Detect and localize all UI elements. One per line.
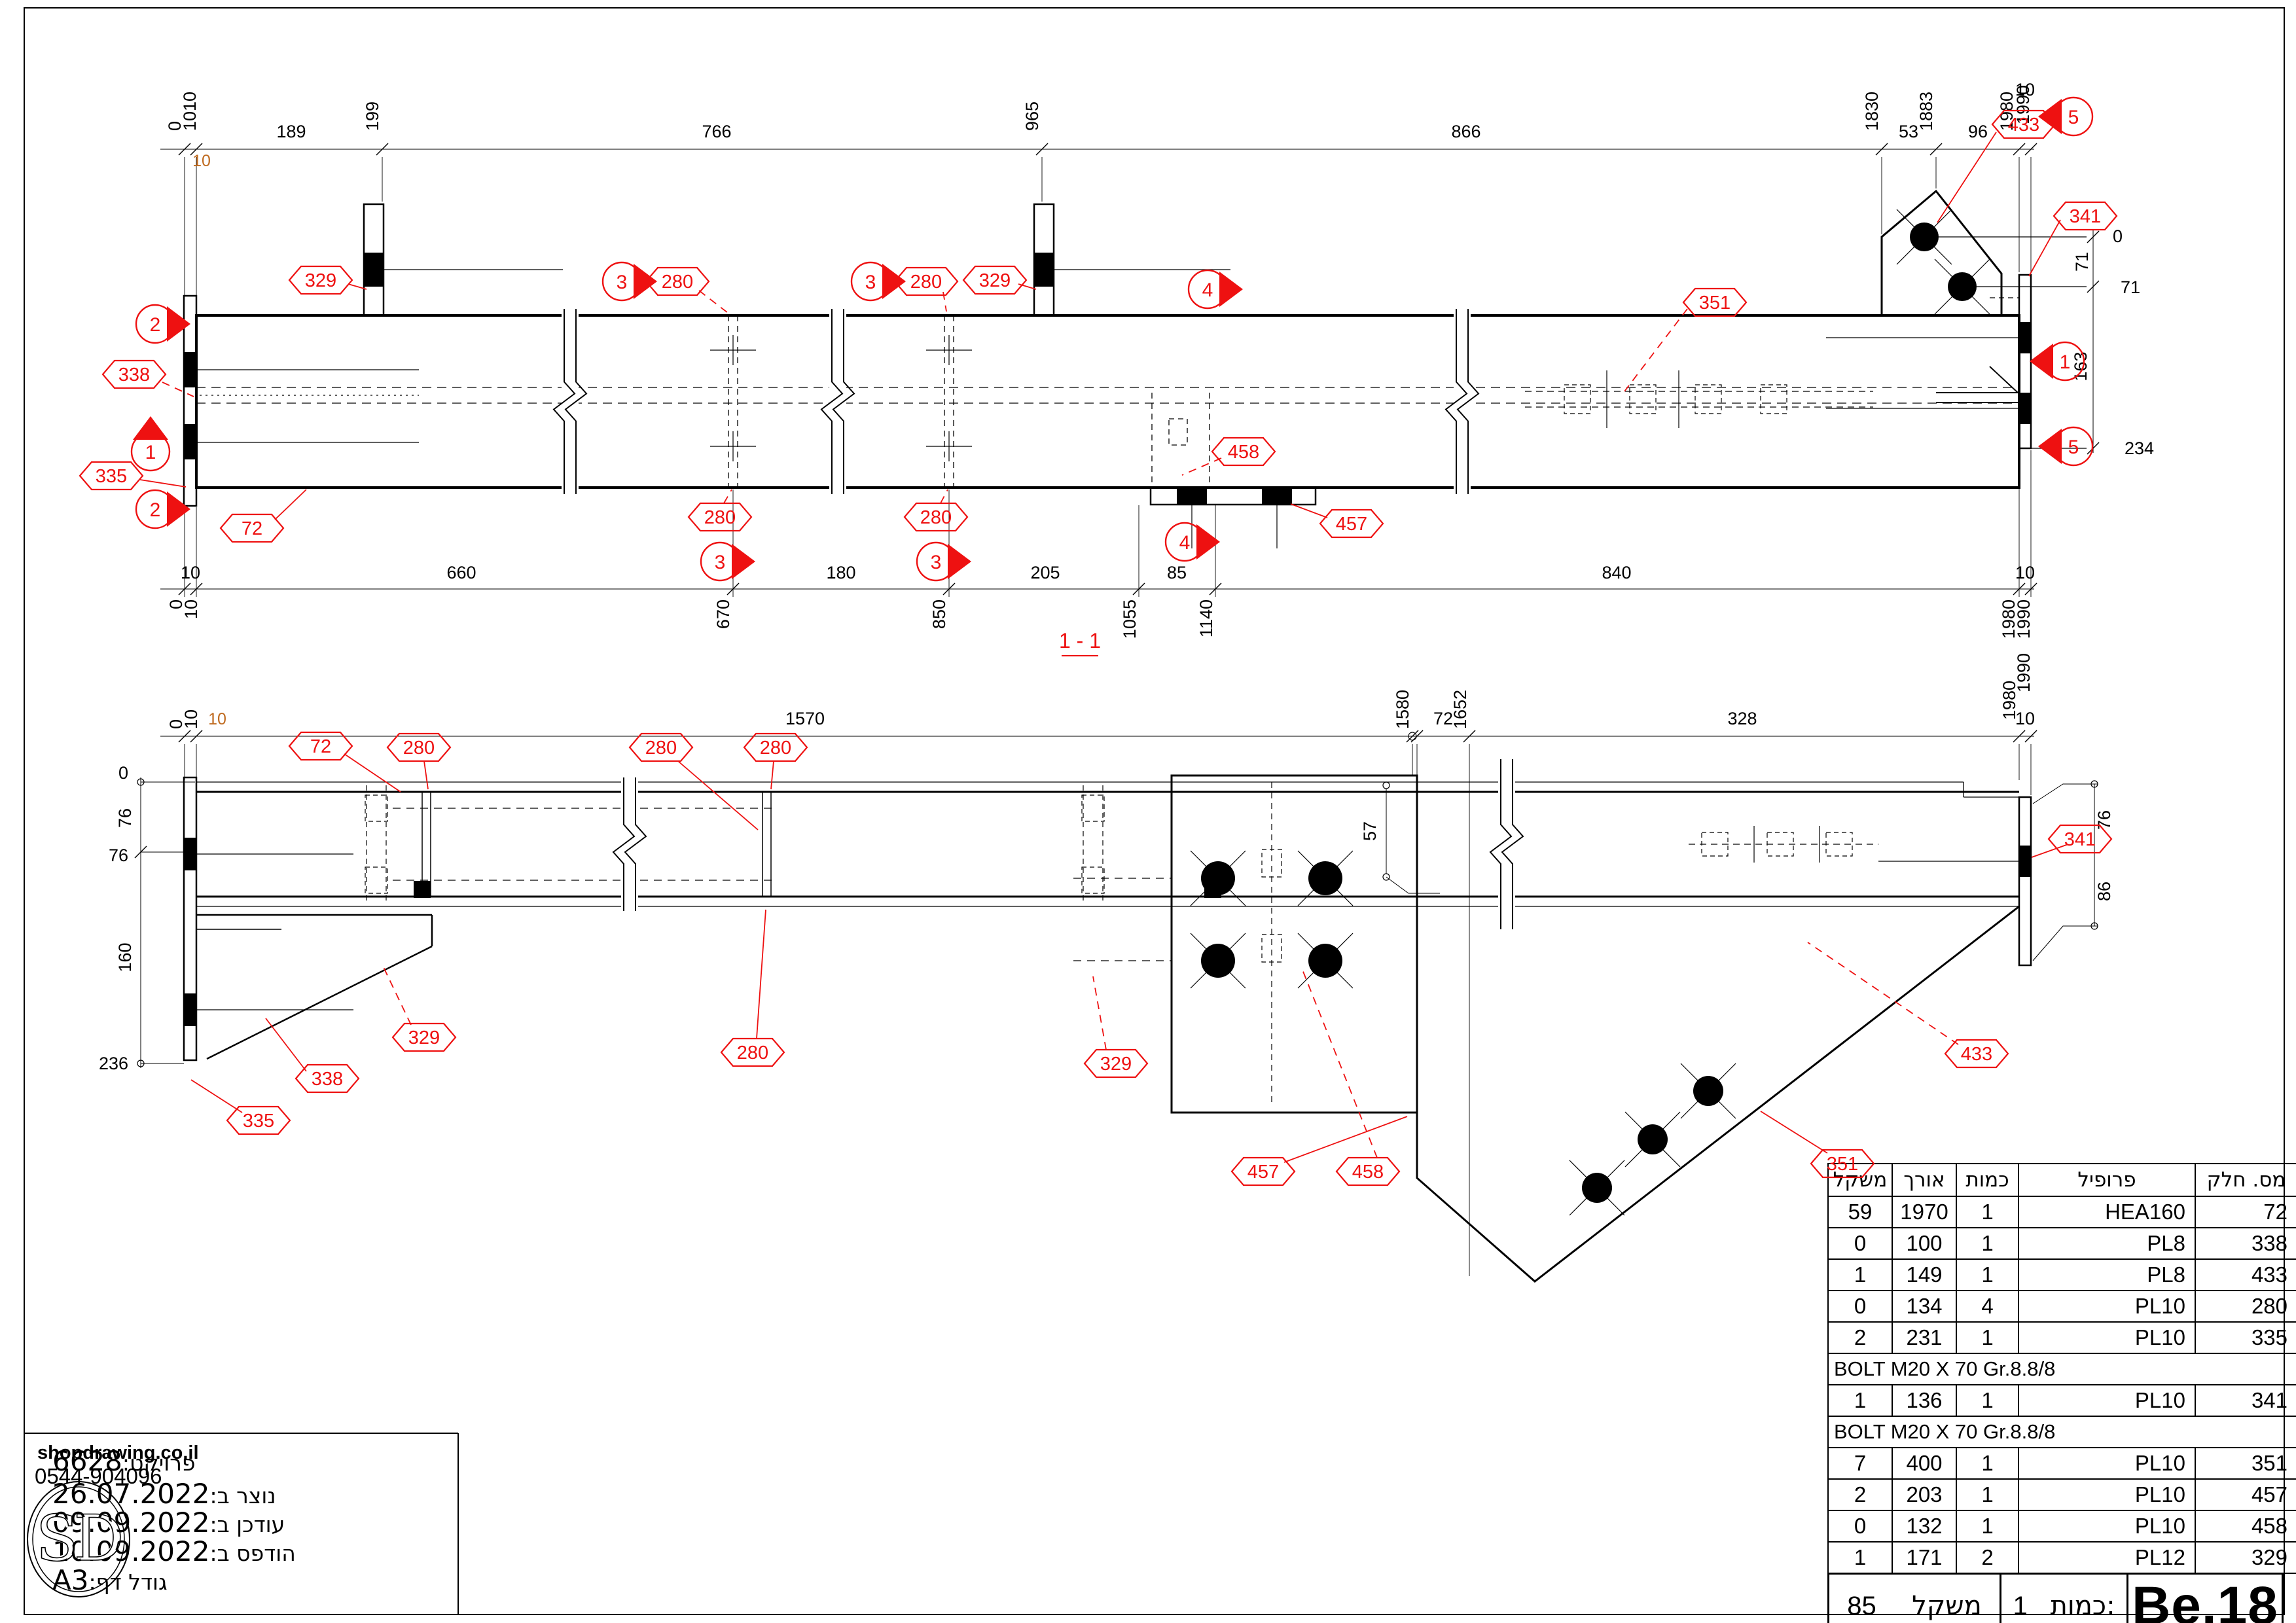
- outline: [2033, 926, 2098, 961]
- table-row: BOLT M20 X 70 Gr.8.8/8: [1828, 1353, 2296, 1385]
- table-row: 5919701HEA16072: [1828, 1196, 2296, 1228]
- table-cell: 72: [2195, 1196, 2296, 1228]
- col-header: פרופיל: [2018, 1164, 2195, 1196]
- line: [2025, 730, 2037, 742]
- plate-outline: [1082, 867, 1104, 893]
- dim-label: 1990: [2013, 85, 2033, 124]
- bolt: [1582, 1173, 1612, 1203]
- line: [191, 1080, 242, 1113]
- break-mask: [829, 311, 846, 492]
- dim-label: 10: [2015, 80, 2035, 99]
- plate-outline: [184, 777, 196, 1060]
- bolt: [1201, 861, 1235, 895]
- line: [424, 761, 428, 789]
- outline: [833, 309, 854, 494]
- detail-flag-number: 3: [865, 272, 876, 293]
- dim-label: 86: [2094, 882, 2114, 901]
- dim-circle: [1383, 782, 1390, 789]
- dim-label: 1140: [1196, 599, 1216, 637]
- line: [941, 490, 948, 503]
- dim-label: 1580: [1393, 690, 1412, 729]
- detail-flag-arrow: [167, 306, 190, 342]
- quantity-value: 1: [2013, 1592, 2027, 1621]
- detail-flag-number: 4: [1179, 532, 1191, 554]
- detail-flag-number: 1: [145, 442, 156, 463]
- line: [1761, 1111, 1827, 1153]
- line: [1298, 851, 1353, 906]
- part-callout-label: 280: [920, 507, 952, 528]
- line: [1093, 976, 1106, 1050]
- line: [1937, 132, 1996, 223]
- dim-label: 0: [166, 719, 186, 729]
- line: [207, 946, 432, 1059]
- dim-label: 10: [181, 599, 201, 619]
- table-cell: PL8: [2018, 1228, 2195, 1259]
- table-cell: 1: [1956, 1479, 2018, 1510]
- detail-flag-number: 3: [715, 552, 726, 573]
- dim-label: 1980: [1999, 599, 2018, 639]
- line: [1930, 143, 1942, 155]
- part-callout-label: 351: [1699, 293, 1731, 313]
- weld-mark: [364, 253, 384, 287]
- outline: [1502, 759, 1523, 929]
- plate-outline: [1262, 849, 1282, 877]
- col-header: אורך: [1892, 1164, 1956, 1196]
- dim-label: 236: [99, 1054, 128, 1073]
- line: [1284, 1116, 1407, 1162]
- quantity-cell: 1 כמות:: [2000, 1573, 2128, 1623]
- dim-label: 71: [2072, 252, 2092, 272]
- table-cell: PL10: [2018, 1510, 2195, 1542]
- dim-label: 660: [446, 563, 476, 582]
- dim-label: 1010: [180, 92, 200, 131]
- bolt-note-cell: BOLT M20 X 70 Gr.8.8/8: [1828, 1353, 2296, 1385]
- detail-flag-number: 3: [617, 272, 628, 293]
- line: [2087, 281, 2099, 293]
- line: [2087, 442, 2099, 454]
- bom-table: משקלאורךכמותפרופילמס. חלק 5919701HEA1607…: [1827, 1163, 2284, 1623]
- dim-label: 0: [166, 599, 186, 609]
- detail-flag-3: [852, 262, 889, 300]
- line: [376, 143, 388, 155]
- line: [1935, 259, 1990, 314]
- plate-outline: [1767, 832, 1793, 856]
- table-cell: 132: [1892, 1510, 1956, 1542]
- line: [1463, 730, 1475, 742]
- weld-mark: [2019, 322, 2031, 353]
- line: [1407, 730, 1418, 742]
- weld-mark: [1177, 488, 1207, 505]
- line: [2025, 583, 2037, 595]
- part-callout-label: 433: [1961, 1044, 1992, 1065]
- part-callout-280: [895, 268, 958, 295]
- detail-flag-3: [917, 543, 955, 580]
- detail-flag-number: 2: [150, 499, 161, 521]
- line: [1191, 851, 1246, 906]
- line: [1876, 143, 1888, 155]
- part-callout-label: 457: [1336, 514, 1367, 535]
- detail-flag-number: 5: [2068, 107, 2079, 128]
- part-callout-351: [1683, 289, 1746, 316]
- dim-label: 199: [363, 101, 382, 131]
- weld-mark: [184, 838, 196, 870]
- table-cell: PL10: [2018, 1385, 2195, 1416]
- detail-flag-arrow: [2030, 344, 2053, 379]
- dim-label: 10: [208, 710, 226, 728]
- bolt: [1308, 944, 1342, 978]
- weld-mark: [1262, 488, 1292, 505]
- dim-label: 163: [2071, 351, 2090, 381]
- table-cell: 2: [1828, 1322, 1892, 1353]
- line: [384, 967, 411, 1025]
- bolt-note-cell: BOLT M20 X 70 Gr.8.8/8: [1828, 1416, 2296, 1448]
- weld-mark: [2019, 393, 2031, 424]
- table-cell: 0: [1828, 1510, 1892, 1542]
- table-cell: 7: [1828, 1448, 1892, 1479]
- table-cell: 1: [1956, 1510, 2018, 1542]
- table-cell: 329: [2195, 1542, 2296, 1573]
- line: [1570, 1160, 1624, 1215]
- line: [757, 910, 766, 1039]
- part-callout-280: [744, 734, 807, 761]
- parts-table-header: משקלאורךכמותפרופילמס. חלק: [1828, 1164, 2296, 1196]
- dim-label: 1980: [2000, 681, 2019, 720]
- line: [162, 382, 194, 397]
- part-callout-280: [905, 503, 967, 531]
- table-cell: 351: [2195, 1448, 2296, 1479]
- outline: [1490, 759, 1511, 929]
- outline: [1458, 309, 1479, 494]
- dim-label: 1990: [2014, 599, 2034, 639]
- dim-label: 10: [181, 709, 201, 729]
- line: [771, 761, 774, 789]
- line: [1681, 1063, 1736, 1118]
- outline: [565, 309, 586, 494]
- col-header: מס. חלק: [2195, 1164, 2296, 1196]
- part-callout-label: 280: [760, 738, 791, 758]
- table-cell: 1970: [1892, 1196, 1956, 1228]
- dim-label: 189: [276, 122, 306, 141]
- plate-outline: [365, 795, 387, 821]
- dim-label: 10: [2015, 563, 2035, 582]
- line: [2087, 231, 2099, 243]
- detail-flag-arrow: [167, 491, 190, 527]
- table-row: 11712PL12329: [1828, 1542, 2296, 1573]
- part-callout-label: 458: [1228, 442, 1259, 463]
- detail-flag-number: 4: [1202, 279, 1213, 301]
- plate-outline: [1702, 832, 1728, 856]
- table-cell: 134: [1892, 1291, 1956, 1322]
- table-cell: 2: [1956, 1542, 2018, 1573]
- line: [1133, 583, 1145, 595]
- table-cell: 100: [1892, 1228, 1956, 1259]
- line: [1291, 504, 1327, 518]
- line: [724, 490, 732, 503]
- table-cell: 136: [1892, 1385, 1956, 1416]
- detail-flag-5: [2054, 98, 2092, 135]
- bolt: [1201, 944, 1235, 978]
- dim-label: 76: [2094, 810, 2114, 830]
- part-callout-label: 335: [96, 466, 127, 487]
- line: [1191, 933, 1246, 988]
- dim-circle: [2091, 923, 2098, 929]
- table-cell: 149: [1892, 1259, 1956, 1291]
- table-cell: 335: [2195, 1322, 2296, 1353]
- line: [140, 480, 186, 487]
- plate-outline: [1630, 385, 1656, 414]
- line: [1570, 1160, 1624, 1215]
- dim-circle: [1383, 874, 1390, 880]
- part-callout-label: 329: [1100, 1054, 1132, 1075]
- table-cell: 1: [1828, 1385, 1892, 1416]
- outline: [625, 777, 646, 911]
- part-callout-label: 329: [408, 1027, 440, 1048]
- bolt: [1638, 1124, 1668, 1154]
- break-mask: [1498, 761, 1515, 927]
- line: [1411, 730, 1423, 742]
- table-cell: 1: [1956, 1228, 2018, 1259]
- section-label: 1 - 1: [1059, 629, 1101, 652]
- table-cell: 0: [1828, 1291, 1892, 1322]
- detail-flag-1: [132, 433, 170, 471]
- dim-label: 71: [2121, 277, 2140, 297]
- table-cell: PL8: [2018, 1259, 2195, 1291]
- weld-mark: [2019, 846, 2031, 877]
- detail-flag-arrow: [732, 544, 755, 579]
- part-callout-label: 338: [312, 1069, 343, 1090]
- plate-outline: [1151, 488, 1316, 505]
- table-cell: PL12: [2018, 1542, 2195, 1573]
- bolt: [1693, 1076, 1723, 1106]
- line: [1018, 284, 1036, 289]
- detail-flag-arrow: [948, 544, 971, 579]
- dim-label: 53: [1899, 122, 1918, 141]
- updated-row: עודכן ב:09.09.2022: [52, 1507, 360, 1539]
- plate-outline: [1761, 385, 1787, 414]
- line: [1625, 1112, 1680, 1167]
- table-cell: 231: [1892, 1322, 1956, 1353]
- part-callout-label: 329: [305, 270, 336, 291]
- bolt: [1308, 861, 1342, 895]
- detail-flag-arrow: [133, 416, 168, 440]
- detail-flag-arrow: [2038, 99, 2062, 134]
- part-callout-label: 433: [2008, 115, 2039, 135]
- line: [1036, 143, 1048, 155]
- line: [943, 583, 955, 595]
- part-callout-341: [2054, 202, 2117, 230]
- dim-label: 1652: [1450, 690, 1470, 729]
- line: [1182, 458, 1221, 475]
- project-row: פרויקט:6628: [52, 1445, 360, 1477]
- table-cell: PL10: [2018, 1448, 2195, 1479]
- line: [179, 143, 190, 155]
- plate-outline: [364, 204, 384, 315]
- detail-flag-4: [1166, 523, 1204, 561]
- line: [190, 143, 202, 155]
- table-cell: 1: [1956, 1448, 2018, 1479]
- plate-outline: [2019, 797, 2031, 965]
- dim-label: 1055: [1120, 599, 1139, 639]
- dim-label: 234: [2125, 438, 2154, 458]
- line: [1191, 933, 1246, 988]
- line: [135, 846, 147, 858]
- outline: [613, 777, 634, 911]
- table-cell: 341: [2195, 1385, 2296, 1416]
- table-row: 11361PL10341: [1828, 1385, 2296, 1416]
- line: [190, 730, 202, 742]
- table-cell: 1: [1956, 1385, 2018, 1416]
- part-callout-280: [689, 503, 751, 531]
- dim-label: 10: [181, 563, 200, 582]
- outline: [1386, 877, 1440, 893]
- table-cell: PL10: [2018, 1322, 2195, 1353]
- line: [943, 292, 946, 312]
- part-callout-label: 280: [910, 272, 942, 293]
- dim-label: 866: [1451, 122, 1480, 141]
- table-cell: 338: [2195, 1228, 2296, 1259]
- table-cell: 4: [1956, 1291, 2018, 1322]
- dim-circle: [137, 1060, 144, 1067]
- dim-label: 160: [115, 942, 135, 972]
- part-callout-458: [1212, 438, 1275, 465]
- part-callout-338: [103, 361, 166, 388]
- plate-outline: [1695, 385, 1721, 414]
- title-block: shopdrawing.co.il 0544-904096 פרויקט:662…: [24, 1433, 458, 1595]
- created-row: נוצר ב:26.07.2022: [52, 1478, 360, 1510]
- weight-total-label: משקל: [1912, 1591, 1982, 1621]
- line: [1681, 1063, 1736, 1118]
- table-cell: 171: [1892, 1542, 1956, 1573]
- part-callout-338: [296, 1065, 359, 1092]
- detail-flag-arrow: [2038, 429, 2062, 464]
- table-cell: 280: [2195, 1291, 2296, 1322]
- detail-flag-2: [136, 490, 174, 528]
- line: [1935, 259, 1990, 314]
- dim-label: 205: [1030, 563, 1060, 582]
- outline: [1882, 191, 2001, 315]
- dim-label: 76: [109, 846, 128, 865]
- line: [2013, 730, 2025, 742]
- outline: [821, 309, 842, 494]
- plate-outline: [365, 867, 387, 893]
- part-callout-457: [1232, 1158, 1295, 1185]
- dim-label: 766: [702, 122, 731, 141]
- plate-outline: [1172, 776, 1417, 1113]
- detail-flag-4: [1189, 270, 1227, 308]
- line: [1298, 851, 1353, 906]
- plate-outline: [184, 296, 196, 506]
- table-row: 22311PL10335: [1828, 1322, 2296, 1353]
- table-row: 01321PL10458: [1828, 1510, 2296, 1542]
- dim-label: 72: [1433, 709, 1453, 728]
- part-callout-433: [1992, 111, 2055, 138]
- part-callout-280: [630, 734, 692, 761]
- dim-label: 1830: [1862, 92, 1882, 131]
- line: [190, 583, 202, 595]
- dim-circle: [137, 779, 144, 785]
- detail-flag-2: [136, 305, 174, 343]
- dim-label: 1883: [1916, 92, 1936, 131]
- line: [344, 754, 401, 792]
- dim-label: 850: [929, 599, 949, 629]
- line: [1210, 583, 1221, 595]
- line: [1624, 309, 1687, 391]
- line: [1990, 366, 2018, 393]
- detail-flag-3: [701, 543, 739, 580]
- table-cell: 2: [1828, 1479, 1892, 1510]
- part-callout-341: [2049, 825, 2111, 853]
- col-header: משקל: [1828, 1164, 1892, 1196]
- dim-label: 96: [1968, 122, 1988, 141]
- dim-label: 1980: [1997, 92, 2017, 131]
- break-mask: [1454, 311, 1471, 492]
- break-mask: [562, 311, 579, 492]
- detail-flag-arrow: [634, 264, 657, 299]
- table-cell: 457: [2195, 1479, 2296, 1510]
- pagesize-row: גודל דף:A3: [52, 1564, 360, 1596]
- part-callout-label: 72: [242, 518, 262, 539]
- dim-label: 670: [713, 599, 733, 629]
- line: [2025, 143, 2037, 155]
- plate-outline: [1262, 935, 1282, 962]
- weight-total-cell: 85 משקל: [1827, 1573, 2001, 1623]
- plate-outline: [2019, 275, 2031, 448]
- table-cell: 1: [1828, 1259, 1892, 1291]
- detail-flag-3: [603, 262, 641, 300]
- part-callout-label: 335: [243, 1111, 274, 1132]
- dim-label: 328: [1727, 709, 1757, 728]
- table-cell: 0: [1828, 1228, 1892, 1259]
- detail-flag-arrow: [1196, 524, 1220, 560]
- table-cell: 59: [1828, 1196, 1892, 1228]
- table-cell: 1: [1828, 1542, 1892, 1573]
- dim-circle: [1408, 732, 1416, 740]
- plate-outline: [1826, 832, 1852, 856]
- part-callout-329: [393, 1024, 456, 1051]
- dim-label: 85: [1167, 563, 1187, 582]
- dim-label: 840: [1602, 563, 1631, 582]
- line: [1808, 942, 1958, 1044]
- dim-label: 965: [1022, 101, 1042, 131]
- plate-outline: [1169, 419, 1187, 445]
- table-row: 01001PL8338: [1828, 1228, 2296, 1259]
- table-cell: PL10: [2018, 1291, 2195, 1322]
- detail-flag-number: 1: [2060, 351, 2071, 373]
- line: [179, 583, 190, 595]
- part-callout-label: 457: [1247, 1162, 1279, 1183]
- dim-label: 1570: [785, 709, 825, 728]
- part-callout-label: 341: [2070, 206, 2101, 227]
- line: [1897, 209, 1952, 264]
- table-cell: 203: [1892, 1479, 1956, 1510]
- col-header: כמות: [1956, 1164, 2018, 1196]
- table-row: 11491PL8433: [1828, 1259, 2296, 1291]
- line: [2032, 844, 2068, 857]
- weld-mark: [1204, 881, 1221, 898]
- part-callout-335: [80, 462, 143, 490]
- table-cell: 433: [2195, 1259, 2296, 1291]
- line: [266, 1018, 306, 1071]
- line: [179, 730, 190, 742]
- part-callout-335: [227, 1107, 290, 1134]
- dim-label: 0: [2113, 226, 2123, 246]
- part-callout-label: 280: [737, 1043, 768, 1063]
- part-callout-280: [646, 268, 709, 295]
- part-callout-label: 72: [310, 736, 331, 757]
- line: [678, 761, 758, 830]
- part-callout-329: [963, 266, 1026, 294]
- outline: [554, 309, 575, 494]
